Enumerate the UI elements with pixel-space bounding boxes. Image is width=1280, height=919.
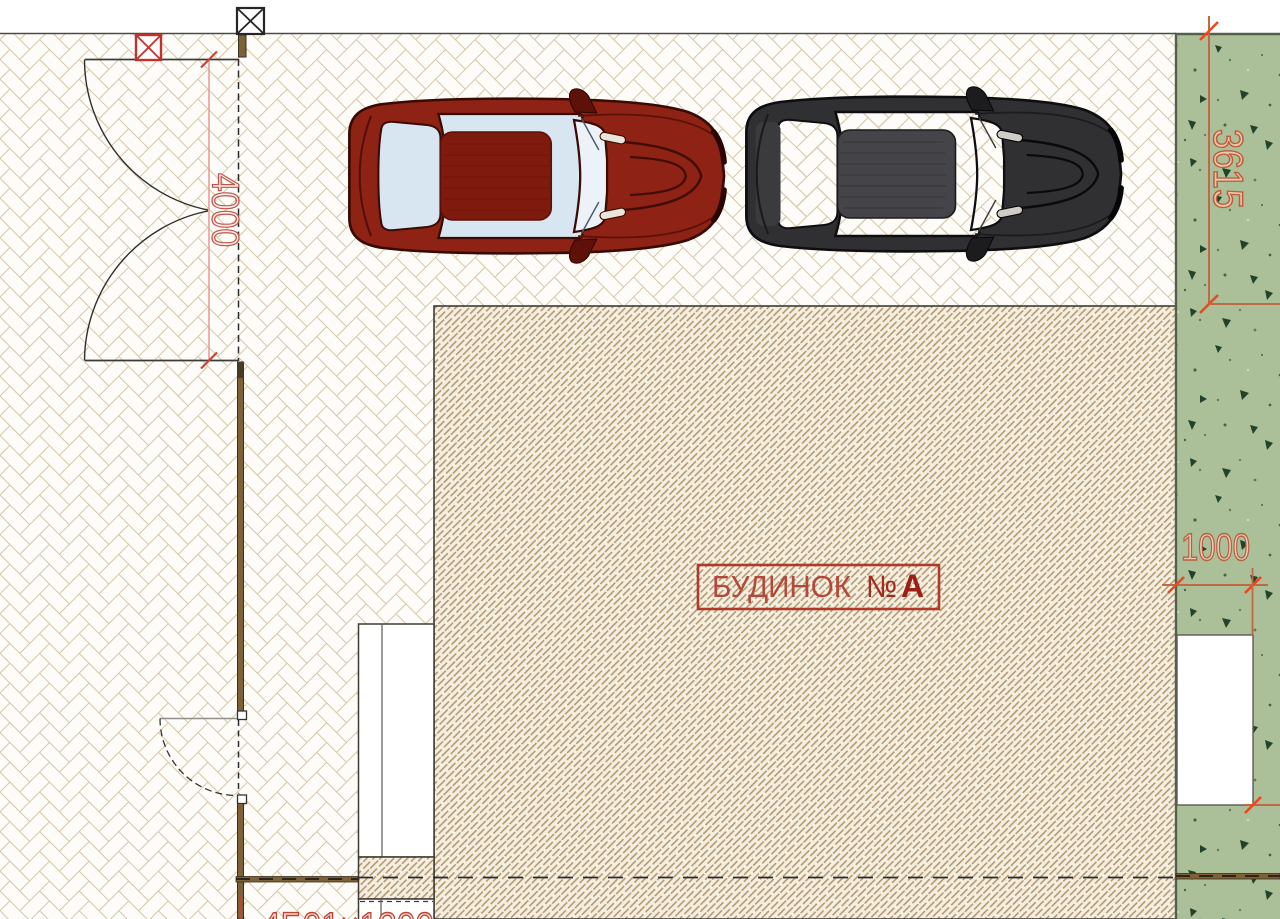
svg-text:1000: 1000 xyxy=(1181,527,1250,569)
svg-text:3615: 3615 xyxy=(1205,129,1252,209)
svg-text:4Б01×1300: 4Б01×1300 xyxy=(262,906,434,919)
svg-text:А: А xyxy=(901,568,924,604)
svg-text:БУДИНОК: БУДИНОК xyxy=(712,569,851,604)
svg-text:№: № xyxy=(866,569,897,604)
svg-text:4000: 4000 xyxy=(204,173,246,247)
